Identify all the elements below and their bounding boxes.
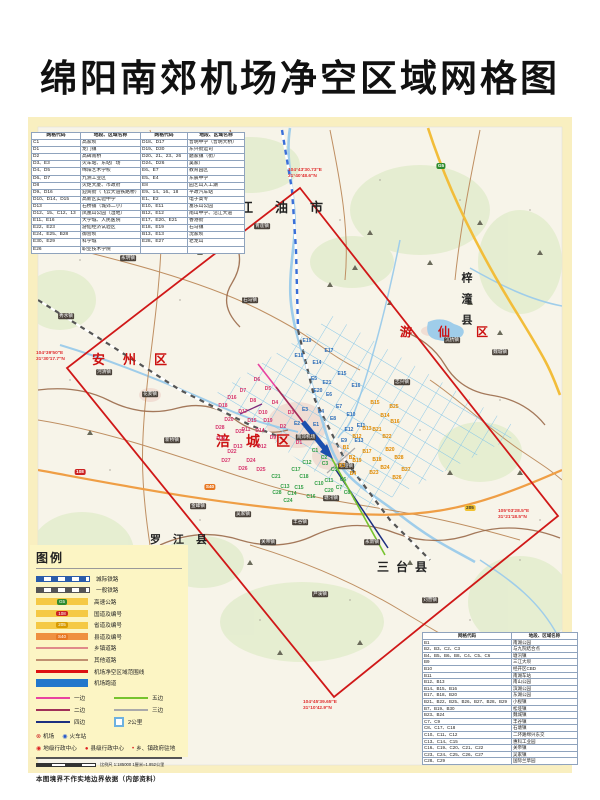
grid-cell-label: C18 [299, 474, 308, 480]
legend-item: G5高速公路 [36, 596, 182, 608]
town-label: 丰谷镇 [292, 519, 308, 525]
table-row: D4、D5绵阳艺术学校E6、E7教育园区 [32, 168, 245, 175]
table-row: B9三江大坝 [423, 659, 578, 666]
grid-cell-label: E6 [326, 392, 332, 398]
grid-square-swatch [114, 717, 124, 727]
road-shield: S40 [204, 484, 215, 490]
table-row: C10、C11、C12二环路绵兴东交 [423, 731, 578, 738]
table-cell: 与九院结合点 [512, 646, 578, 653]
table-row: B4、B5、B6、B8、C4、C5、C6塘汛镇 [423, 652, 578, 659]
table-cell: 火车站、东站广场 [81, 161, 141, 168]
table-cell: B7、B19、B30 [423, 705, 512, 712]
scale-segment [81, 763, 96, 768]
table-row: D13石桥铺（城郊二小）E10、E11富乐山公园 [32, 203, 245, 210]
table-cell: D2 [32, 154, 81, 161]
table-cell: C16、C19、C20、C21、C22 [423, 745, 512, 752]
grid-cell-label: B28 [394, 455, 403, 461]
symbol-icon: ⊗ [36, 734, 41, 740]
pattern-line-swatch [114, 709, 148, 711]
grid-cell-label: B4 [350, 471, 356, 477]
legend-item: 108国道及编号 [36, 608, 182, 620]
grid-cell-label: D22 [227, 449, 236, 455]
table-cell: C1 [32, 140, 81, 147]
corner-coordinate: 104°39′50″E31°30′17.7″N [36, 351, 65, 362]
town-label: 石马镇 [242, 297, 258, 303]
table-row: B23、B24魏城镇 [423, 712, 578, 719]
scale-text: 比例尺 1:185000 1厘米=1.852公里 [100, 762, 164, 768]
town-label: 花荄镇 [142, 391, 158, 397]
table-row: B12、B13南山公园 [423, 679, 578, 686]
legend-swatch: 108 [36, 610, 88, 617]
table-cell: C23、C24、C25、C26、C27 [423, 751, 512, 758]
grid-cell-label: D6 [254, 377, 260, 383]
table-row: C13、C14、C15惠科工业园 [423, 738, 578, 745]
table-cell: 火炬大厦、市政府 [81, 182, 141, 189]
coordinate-line: 104°45′39.65″E [303, 700, 337, 706]
table-cell: 香港街 [188, 218, 245, 225]
symbol-icon: • [132, 746, 134, 752]
table-cell: B4、B5、B6、B8、C4、C5、C6 [423, 652, 512, 659]
column-header: 网格代码 [423, 633, 512, 640]
grid-cell-label: E3 [302, 407, 308, 413]
grid-cell-label: B23 [369, 470, 378, 476]
grid-cell-label: D8 [250, 398, 256, 404]
legend-item-label: 乡、镇政府驻地 [136, 746, 175, 752]
town-label: 金峰镇 [190, 503, 206, 509]
corner-coordinate: 104°43′30.73″E31°40′48.6″N [288, 168, 322, 179]
grid-cell-label: E7 [336, 404, 342, 410]
table-cell: 九洲工业区 [81, 175, 141, 182]
grid-cell-label: E9 [341, 438, 347, 444]
road-number-badge: 108 [56, 611, 68, 617]
table-cell: B2、B3、C2、C3 [423, 646, 512, 653]
grid-cell-label: B14 [380, 413, 389, 419]
table-cell: E8 [141, 182, 188, 189]
legend-item-label: 国道及编号 [94, 610, 122, 618]
road-shield: 205 [465, 505, 476, 511]
grid-cell-label: B18 [372, 457, 381, 463]
grid-cell-label: B22 [382, 434, 391, 440]
grid-cell-label: E18 [295, 353, 304, 359]
table-cell: C10、C11、C12 [423, 731, 512, 738]
scale-segment [66, 763, 81, 768]
table-cell: B9 [423, 659, 512, 666]
table-cell: E1、E2 [141, 196, 188, 203]
table-row: B7、B19、B30松垭镇 [423, 705, 578, 712]
table-row: C16、C19、C20、C21、C22关帝镇 [423, 745, 578, 752]
legend-pattern-item: 2公里 [114, 716, 184, 728]
legend-item: 乡镇道路 [36, 643, 182, 655]
table-cell: E11、E16 [32, 218, 81, 225]
town-label: 塘汛镇 [323, 495, 339, 501]
district-label: 三台县 [377, 558, 434, 575]
grid-cell-label: D18 [218, 403, 227, 409]
legend-item-label: 一边 [74, 694, 85, 702]
table-row: D10、D14、D15高新区实验中学E1、E2电子高专 [32, 196, 245, 203]
grid-cell-label: E8 [330, 416, 336, 422]
legend-item-label: 一般铁路 [96, 586, 118, 594]
legend-item-label: 三边 [152, 706, 163, 714]
legend-swatch: G5 [36, 598, 88, 605]
town-label: 永明镇 [120, 255, 136, 261]
table-cell: D20、21、23、26 [141, 154, 188, 161]
grid-cell-label: B15 [370, 400, 379, 406]
grid-cell-label: D5 [265, 386, 271, 392]
grid-cell-label: D2 [280, 424, 286, 430]
table-cell: E10、E11 [141, 203, 188, 210]
table-cell: E9、14、16、18 [141, 189, 188, 196]
coordinate-line: 31°30′17.7″N [36, 357, 65, 363]
legend-symbols-row1: ⊗机场◉火车站 [36, 732, 182, 740]
table-cell: D8 [32, 182, 81, 189]
legend-item-label: 高速公路 [94, 598, 116, 606]
table-cell: D6、D7 [32, 175, 81, 182]
table-cell: 凤凰山公园（湿地） [81, 211, 141, 218]
grid-cell-label: D9 [270, 435, 276, 441]
grid-cell-label: E19 [303, 338, 312, 344]
table-cell [188, 246, 245, 253]
legend-item-label: 2公里 [128, 718, 142, 726]
pattern-line-swatch [36, 721, 70, 723]
table-cell: 石桥铺（城郊二小） [81, 203, 141, 210]
pattern-line-swatch [36, 709, 70, 711]
town-label: 芦溪镇 [312, 591, 328, 597]
legend-title: 图例 [36, 549, 182, 566]
town-label: 秀水镇 [58, 313, 74, 319]
legend-pattern-items: 一边五边二边三边四边2公里 [36, 692, 182, 728]
table-cell: 教育园区 [188, 168, 245, 175]
road-number-badge: S40 [56, 634, 68, 640]
column-header: 网格代码 [141, 133, 188, 140]
grid-cell-label: B26 [392, 475, 401, 481]
table-cell: 东兴街运司 [188, 147, 245, 154]
table-cell: 南湖公园 [512, 639, 578, 646]
grid-cell-label: B27 [401, 467, 410, 473]
table-cell: B23、B24 [423, 712, 512, 719]
corner-coordinate: 104°45′39.65″E31°10′42.9″N [303, 700, 337, 711]
legend-item-label: 省道及编号 [94, 621, 122, 629]
grid-cell-label: C17 [291, 467, 300, 473]
table-cell: B17、B18、B20 [423, 692, 512, 699]
map-disclaimer: 本图境界不作实地边界依据（内部资料） [36, 774, 182, 783]
town-label: 南郊机场 [296, 434, 316, 440]
legend-item-label: 五边 [152, 694, 163, 702]
scale-segment [36, 763, 51, 768]
grid-cell-label: B21 [372, 427, 381, 433]
legend-item: 205省道及编号 [36, 619, 182, 631]
table-row: C7、C9丰谷镇 [423, 718, 578, 725]
legend-item-label: 机场 [43, 734, 54, 740]
pattern-line-swatch [36, 697, 70, 699]
legend-swatch [36, 670, 88, 673]
grid-cell-label: C21 [271, 474, 280, 480]
legend-item: 机场净空区域范围线 [36, 666, 182, 678]
grid-cell-label: D24 [246, 458, 255, 464]
table-cell: 普明中学（普明大桥） [188, 140, 245, 147]
grid-cell-label: B25 [389, 404, 398, 410]
table-row: C23、C24、C25、C26、C27吴家镇 [423, 751, 578, 758]
legend-swatch [36, 587, 90, 593]
legend-pattern-item: 一边 [36, 692, 114, 704]
grid-cell-label: C24 [283, 498, 292, 504]
legend-item: 城际铁路 [36, 573, 182, 585]
table-cell: 职业技术学院 [81, 246, 141, 253]
legend-item-label: 火车站 [69, 734, 86, 740]
table-cell: C7、C9 [423, 718, 512, 725]
grid-cell-label: C13 [280, 484, 289, 490]
table-cell: C28、C29 [423, 758, 512, 765]
table-cell: 二环路绵兴东交 [512, 731, 578, 738]
table-row: B11南湖车站 [423, 672, 578, 679]
legend-symbol-item: ◉火车站 [62, 732, 86, 740]
grid-code-table-bottom: 网格代码地段、区域名称B1南湖公园B2、B3、C2、C3与九院结合点B4、B5、… [422, 632, 578, 765]
table-cell: 惠科工业园 [512, 738, 578, 745]
symbol-icon: ◉ [62, 734, 67, 740]
table-cell: D4、D5 [32, 168, 81, 175]
table-row: D3、E3火车站、东站广场D24、D26吴家厂 [32, 161, 245, 168]
table-cell: 吴家厂 [188, 161, 245, 168]
grid-cell-label: B16 [390, 419, 399, 425]
grid-cell-label: B3 [339, 463, 345, 469]
grid-cell-label: D7 [240, 388, 246, 394]
grid-cell-label: E10 [347, 412, 356, 418]
table-row: B1南湖公园 [423, 639, 578, 646]
coordinate-line: 31°40′48.6″N [288, 174, 322, 180]
table-cell: 园艺山人工湖 [188, 182, 245, 189]
table-cell [141, 246, 188, 253]
legend-line-items: 城际铁路一般铁路G5高速公路108国道及编号205省道及编号S40县道及编号乡镇… [36, 573, 182, 689]
legend-item-label: 四边 [74, 718, 85, 726]
grid-cell-label: D10 [258, 410, 267, 416]
grid-cell-label: D27 [221, 458, 230, 464]
legend-divider [36, 568, 182, 569]
legend-item-label: 其他道路 [94, 656, 116, 664]
table-cell: 御营坝 [81, 232, 141, 239]
column-header: 地段、区域名称 [81, 133, 141, 140]
legend-item-label: 县道及编号 [94, 633, 122, 641]
grid-cell-label: E16 [352, 383, 361, 389]
table-row: E22、E23游仙经济试验区E18、E19石马镇 [32, 225, 245, 232]
grid-cell-label: E15 [338, 371, 347, 377]
table-row: D6、D7九洲工业区E5、E4东辰中学 [32, 175, 245, 182]
table-cell: E18、E19 [141, 225, 188, 232]
coordinate-line: 104°39′50″E [36, 351, 65, 357]
grid-cell-label: D3 [288, 410, 294, 416]
legend-item: S40县道及编号 [36, 631, 182, 643]
table-cell: 松垭镇 [512, 705, 578, 712]
grid-cell-label: C8 [344, 490, 350, 496]
table-header-row: 网格代码地段、区域名称 [423, 633, 578, 640]
grid-cell-label: D17 [238, 409, 247, 415]
legend-item-label: 地级行政中心 [43, 746, 77, 752]
coordinate-line: 31°21′18.5″N [498, 515, 529, 521]
table-cell: D18、D17 [141, 140, 188, 147]
legend-symbols-row2: ◉地级行政中心●县级行政中心•乡、镇政府驻地 [36, 744, 182, 752]
grid-cell-label: B20 [385, 447, 394, 453]
district-label: 梓潼县 [458, 272, 474, 335]
table-cell: 三江大坝 [512, 659, 578, 666]
town-label: 刘营镇 [422, 597, 438, 603]
table-cell: 科学城 [81, 239, 141, 246]
grid-cell-label: E5 [311, 376, 317, 382]
grid-cell-label: E14 [313, 360, 322, 366]
pattern-line-swatch [114, 697, 148, 699]
table-cell: B12、E12 [141, 211, 188, 218]
grid-cell-label: C20 [324, 488, 333, 494]
column-header: 地段、区域名称 [188, 133, 245, 140]
page-title: 绵阳南郊机场净空区域网格图 [0, 48, 600, 102]
legend-symbol-item: ●县级行政中心 [85, 744, 124, 752]
table-row: B21、B22、B25、B26、B27、B28、B29小枧镇 [423, 698, 578, 705]
scale-segment [51, 763, 66, 768]
legend-item-label: 机场跑道 [94, 679, 116, 687]
table-cell: 大学城、人民医院 [81, 218, 141, 225]
town-label: 忠兴镇 [394, 379, 410, 385]
town-label: 吴家镇 [235, 511, 251, 517]
table-cell: E22、E23 [32, 225, 81, 232]
grid-cell-label: E1 [313, 422, 319, 428]
grid-code-table-top: 网格代码地段、区域名称网格代码地段、区域名称C1高家坝D18、D17普明中学（普… [31, 132, 245, 254]
legend-swatch [36, 659, 88, 661]
grid-cell-label: B2 [349, 455, 355, 461]
symbol-icon: ◉ [36, 746, 41, 752]
legend-swatch [36, 576, 90, 582]
table-cell: E28、E27 [141, 239, 188, 246]
legend-item: 机场跑道 [36, 677, 182, 689]
district-label: 安州区 [92, 349, 185, 368]
table-cell: 魏城镇 [512, 712, 578, 719]
legend-item-label: 机场净空区域范围线 [94, 668, 144, 676]
legend-pattern-item: 二边 [36, 704, 114, 716]
town-label: 河清镇 [96, 369, 112, 375]
grid-cell-label: C16 [306, 494, 315, 500]
legend-swatch [36, 679, 88, 687]
grid-cell-label: B1 [343, 445, 349, 451]
table-cell: E6、E7 [141, 168, 188, 175]
legend-symbol-item: •乡、镇政府驻地 [132, 744, 175, 752]
town-label: 魏城镇 [492, 349, 508, 355]
legend-symbol-item: ◉地级行政中心 [36, 744, 77, 752]
table-cell: D13 [32, 203, 81, 210]
table-cell: 老龙山 [188, 239, 245, 246]
table-row: E26职业技术学院 [32, 246, 245, 253]
grid-cell-label: D21 [216, 436, 225, 442]
legend-item-label: 乡镇道路 [94, 644, 116, 652]
legend-swatch: 205 [36, 622, 88, 629]
grid-cell-label: E4 [318, 409, 324, 415]
table-row: C8、C17、C18石塘镇 [423, 725, 578, 732]
table-row: E30、E29科学城E28、E27老龙山 [32, 239, 245, 246]
table-cell: B21、B22、B25、B26、B27、B28、B29 [423, 698, 512, 705]
grid-cell-label: D25 [256, 467, 265, 473]
table-cell: 丰谷镇 [512, 718, 578, 725]
table-cell: E24、E25、B28 [32, 232, 81, 239]
table-cell: 高家坝 [81, 140, 141, 147]
grid-cell-label: B17 [362, 449, 371, 455]
column-header: 地段、区域名称 [512, 633, 578, 640]
table-cell: E17、E20、E21 [141, 218, 188, 225]
grid-cell-label: B12 [352, 434, 361, 440]
table-cell: 富乐山公园 [188, 203, 245, 210]
road-shield: 108 [75, 469, 86, 475]
grid-cell-label: D19 [263, 418, 272, 424]
road-number-badge: G5 [57, 599, 67, 605]
table-cell: E26 [32, 246, 81, 253]
table-row: D1龙门镇D19、D30东兴街运司 [32, 147, 245, 154]
legend-symbol-item: ⊗机场 [36, 732, 54, 740]
table-cell: 南湖车站 [512, 672, 578, 679]
legend-pattern-item: 五边 [114, 692, 184, 704]
grid-cell-label: C11 [325, 478, 334, 484]
table-cell: B11 [423, 672, 512, 679]
table-cell: 游仙经济试验区 [81, 225, 141, 232]
grid-cell-label: B24 [380, 465, 389, 471]
town-label: 关帝镇 [260, 539, 276, 545]
grid-cell-label: C28 [272, 490, 281, 496]
coordinate-line: 105°03′28.5″E [498, 509, 529, 515]
legend-pattern-item: 三边 [114, 704, 184, 716]
table-cell: 南山中学、沿江大道 [188, 211, 245, 218]
table-cell: 平政汽车站 [188, 189, 245, 196]
table-row: E24、E25、B28御营坝B13、E13沈家坝 [32, 232, 245, 239]
symbol-icon: ● [85, 746, 89, 752]
table-cell: 迎宾街（飞云大道铁路桥） [81, 189, 141, 196]
legend-swatch: S40 [36, 633, 88, 640]
town-label: 青莲镇 [254, 223, 270, 229]
grid-cell-label: E20 [314, 388, 323, 394]
table-row: B2、B3、C2、C3与九院结合点 [423, 646, 578, 653]
column-header: 网格代码 [32, 133, 81, 140]
table-cell: 高碑南桥 [81, 154, 141, 161]
table-cell: 磨家镇（街） [188, 154, 245, 161]
table-cell: 石马镇 [188, 225, 245, 232]
table-cell: 塘汛镇 [512, 652, 578, 659]
legend-box: 图例 城际铁路一般铁路G5高速公路108国道及编号205省道及编号S40县道及编… [30, 545, 188, 757]
legend-item-label: 县级行政中心 [90, 746, 124, 752]
table-cell: 东辰中学 [188, 175, 245, 182]
table-cell: D3、E3 [32, 161, 81, 168]
table-row: B14、B15、B16滨湖公园 [423, 685, 578, 692]
legend-item: 其他道路 [36, 654, 182, 666]
grid-cell-label: E12 [345, 427, 354, 433]
grid-cell-label: D16 [227, 395, 236, 401]
table-row: C1高家坝D18、D17普明中学（普明大桥） [32, 140, 245, 147]
grid-cell-label: C14 [287, 491, 296, 497]
table-cell: E30、E29 [32, 239, 81, 246]
table-cell: 龙门镇 [81, 147, 141, 154]
table-row: D8火炬大厦、市政府E8园艺山人工湖 [32, 182, 245, 189]
table-cell: D10、D14、D15 [32, 196, 81, 203]
table-header-row: 网格代码地段、区域名称网格代码地段、区域名称 [32, 133, 245, 140]
table-row: C28、C29国际兰草园 [423, 758, 578, 765]
grid-cell-label: D14 [255, 428, 264, 434]
grid-cell-label: C1 [312, 448, 318, 454]
table-cell: 南山公园 [512, 679, 578, 686]
table-cell: D12、15、C12、13 [32, 211, 81, 218]
table-row: D9、D16迎宾街（飞云大道铁路桥）E9、14、16、18平政汽车站 [32, 189, 245, 196]
table-cell: D9、D16 [32, 189, 81, 196]
table-cell: D19、D30 [141, 147, 188, 154]
table-cell: C8、C17、C18 [423, 725, 512, 732]
grid-cell-label: C7 [336, 485, 342, 491]
table-row: D12、15、C12、13凤凰山公园（湿地）B12、E12南山中学、沿江大道 [32, 211, 245, 218]
table-row: E11、E16大学城、人民医院E17、E20、E21香港街 [32, 218, 245, 225]
grid-cell-label: C3 [322, 461, 328, 467]
district-label: 江油市 [240, 197, 345, 216]
corner-coordinate: 105°03′28.5″E31°21′18.5″N [498, 509, 529, 520]
table-cell: B1 [423, 639, 512, 646]
table-cell: 经开区CBD [512, 665, 578, 672]
